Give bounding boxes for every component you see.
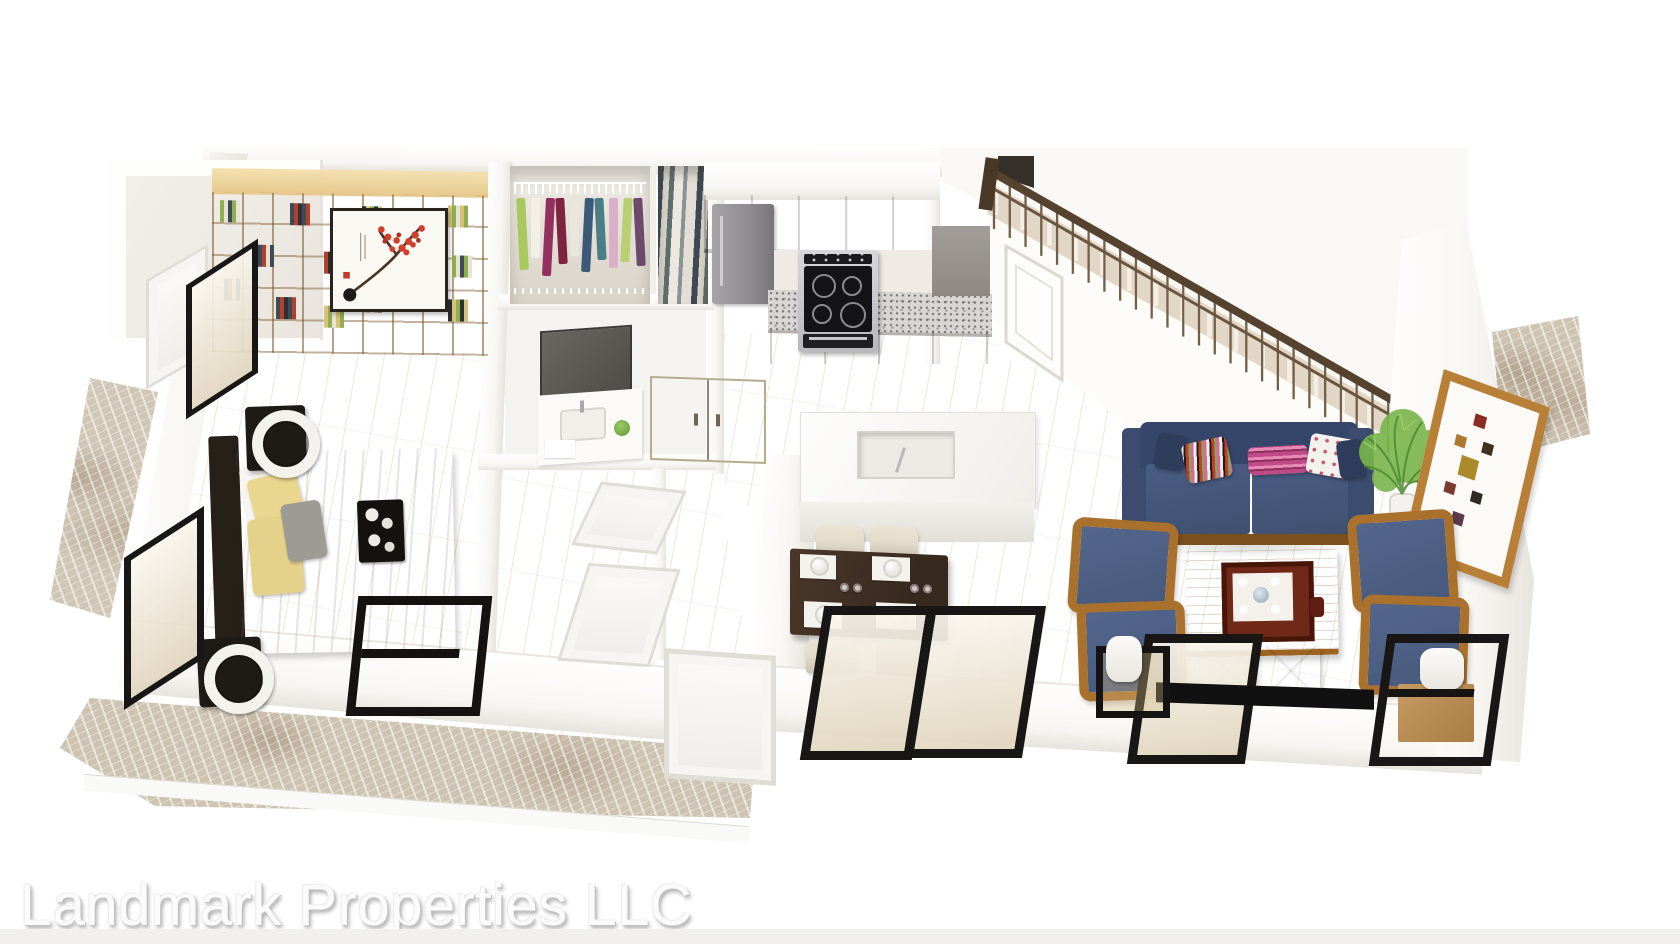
wine-glass (910, 584, 919, 593)
range-cooktop (804, 266, 872, 332)
island-sink (857, 431, 955, 479)
kitchen-island-top (800, 412, 1036, 506)
gallery-photo (1454, 434, 1467, 449)
hanging-garment (633, 198, 646, 266)
gallery-photo (1470, 490, 1483, 505)
hanging-clothes-rack (516, 198, 646, 292)
hanging-garment (542, 198, 555, 276)
window-crossbar (1387, 689, 1474, 697)
gallery-photo (1481, 442, 1494, 457)
burner (812, 304, 832, 324)
bath-mat (545, 440, 575, 458)
place-setting (872, 556, 910, 582)
table-decor-item (1310, 597, 1324, 617)
oven-door (803, 334, 873, 348)
bedroom-bench (346, 596, 493, 716)
range-control-panel (804, 254, 872, 264)
wine-glass (923, 584, 932, 593)
burner (840, 302, 866, 328)
book-spines (448, 299, 468, 321)
oven-handle (809, 337, 867, 340)
burner (812, 274, 836, 298)
book-spines (290, 203, 310, 225)
tray-dish (1239, 605, 1248, 614)
refrigerator (712, 204, 774, 304)
cream-storage-cabinet (650, 376, 766, 464)
hanging-garment (620, 198, 632, 262)
table-lamp-top (252, 410, 320, 478)
tray-dish (368, 534, 380, 546)
cabinet-handle (716, 414, 720, 426)
tray-dish (1239, 577, 1248, 586)
gallery-photo (1443, 481, 1456, 496)
hanging-garment (516, 198, 529, 270)
blossom-branch-drawing (333, 211, 445, 309)
floorplan-render: Landmark Properties LLC (0, 0, 1680, 944)
kitchen-corner-cabinet (932, 226, 990, 296)
sofa-pillow-magenta-stripe (1247, 444, 1308, 475)
book-spines (276, 297, 296, 319)
living-window-right (1369, 634, 1510, 766)
side-lamp-left (1106, 636, 1142, 682)
tray-dish (1271, 605, 1280, 614)
place-setting (800, 554, 836, 580)
tray-dish (1271, 577, 1280, 586)
hanging-garment (594, 198, 606, 260)
book-spines (220, 200, 240, 222)
table-lamp-bottom (204, 644, 274, 714)
burner (842, 276, 862, 296)
gallery-photo (1473, 413, 1487, 429)
breakfast-tray (357, 499, 405, 563)
hanging-garment (531, 198, 540, 258)
gallery-photo-center (1458, 455, 1480, 481)
blossom-artwork (330, 208, 448, 312)
serving-tray (1221, 561, 1314, 643)
wine-glass (853, 583, 862, 592)
hanging-garment (570, 198, 579, 256)
bottom-strip (0, 929, 1680, 944)
book-spines (448, 205, 468, 227)
tray-dish (365, 508, 378, 521)
entry-door (664, 648, 776, 786)
refrigerator-handle (720, 216, 723, 286)
cabinet-handle (694, 414, 698, 426)
utility-closet-interior (658, 166, 708, 304)
bathroom-plant (614, 420, 630, 436)
bench-crossbar (361, 649, 460, 658)
tray-dish (382, 518, 393, 529)
hanging-garment (581, 198, 594, 272)
hanging-garment (555, 198, 567, 264)
book-spines (452, 255, 472, 277)
hanging-garment (609, 198, 618, 268)
wine-glass (840, 583, 849, 592)
dining-window (904, 606, 1046, 758)
vanity-faucet (580, 400, 584, 412)
closet-lower-rail (514, 288, 648, 294)
closet-wire-shelf (514, 182, 646, 194)
range-oven (798, 250, 878, 352)
tray-dish (384, 542, 394, 552)
